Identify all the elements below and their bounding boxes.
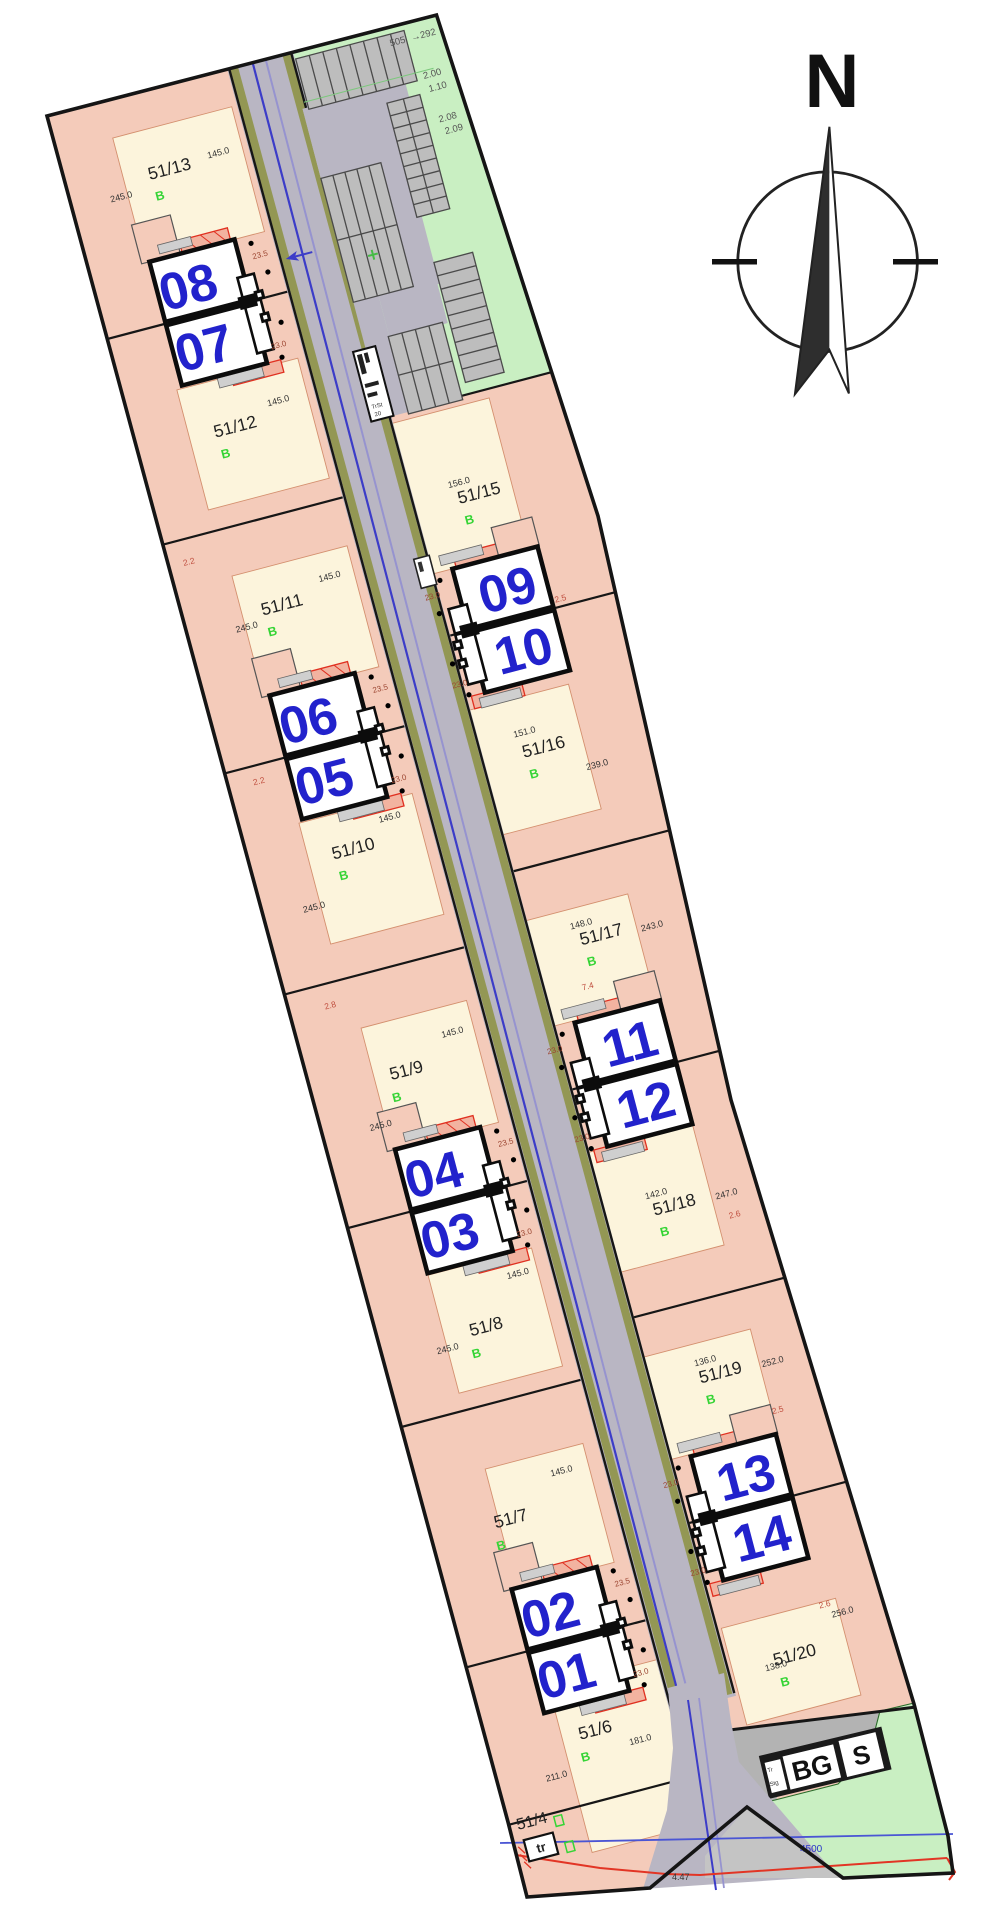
svg-text:N: N [805,39,860,124]
svg-text:4.47: 4.47 [672,1872,690,1882]
